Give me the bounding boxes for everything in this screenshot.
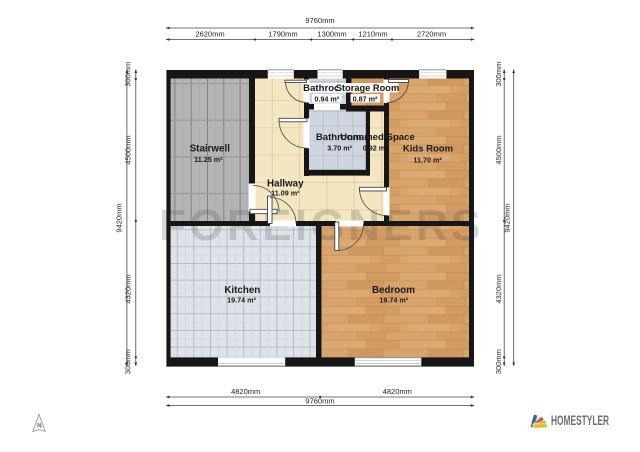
- svg-text:300mm: 300mm: [494, 349, 503, 374]
- svg-text:9760mm: 9760mm: [305, 396, 334, 405]
- svg-text:4820mm: 4820mm: [383, 387, 412, 396]
- svg-text:11.70 m²: 11.70 m²: [413, 156, 442, 165]
- svg-text:HOMESTYLER: HOMESTYLER: [551, 414, 609, 428]
- svg-text:1210mm: 1210mm: [358, 30, 387, 39]
- svg-text:Storage Room: Storage Room: [336, 83, 400, 93]
- svg-text:0.92 m²: 0.92 m²: [363, 144, 388, 153]
- svg-text:300mm: 300mm: [494, 62, 503, 87]
- svg-text:1790mm: 1790mm: [268, 30, 297, 39]
- svg-text:9420mm: 9420mm: [503, 203, 512, 232]
- svg-text:0.87 m²: 0.87 m²: [353, 94, 378, 103]
- svg-text:4500mm: 4500mm: [494, 135, 503, 164]
- svg-text:3.70 m²: 3.70 m²: [327, 144, 352, 153]
- svg-text:11.25 m²: 11.25 m²: [194, 155, 223, 164]
- svg-text:N: N: [37, 422, 42, 429]
- svg-text:19.74 m²: 19.74 m²: [227, 296, 256, 305]
- svg-text:4500mm: 4500mm: [124, 135, 133, 164]
- svg-text:Unnamed Space: Unnamed Space: [340, 132, 415, 143]
- svg-text:Kitchen: Kitchen: [224, 285, 260, 296]
- svg-text:2620mm: 2620mm: [195, 30, 224, 39]
- svg-text:Bedroom: Bedroom: [372, 285, 415, 296]
- svg-text:19.74 m²: 19.74 m²: [379, 296, 408, 305]
- svg-text:9760mm: 9760mm: [305, 16, 334, 25]
- svg-text:2720mm: 2720mm: [417, 30, 446, 39]
- svg-text:11.09 m²: 11.09 m²: [271, 188, 300, 197]
- svg-text:Kids Room: Kids Room: [403, 144, 453, 155]
- svg-text:0.94 m²: 0.94 m²: [314, 94, 339, 103]
- svg-text:Stairwell: Stairwell: [190, 144, 231, 155]
- svg-text:4320mm: 4320mm: [494, 274, 503, 303]
- svg-text:4320mm: 4320mm: [124, 274, 133, 303]
- svg-text:9420mm: 9420mm: [115, 203, 124, 232]
- svg-text:300mm: 300mm: [124, 62, 133, 87]
- svg-text:4820mm: 4820mm: [231, 387, 260, 396]
- svg-text:1300mm: 1300mm: [317, 30, 346, 39]
- svg-text:300mm: 300mm: [124, 349, 133, 374]
